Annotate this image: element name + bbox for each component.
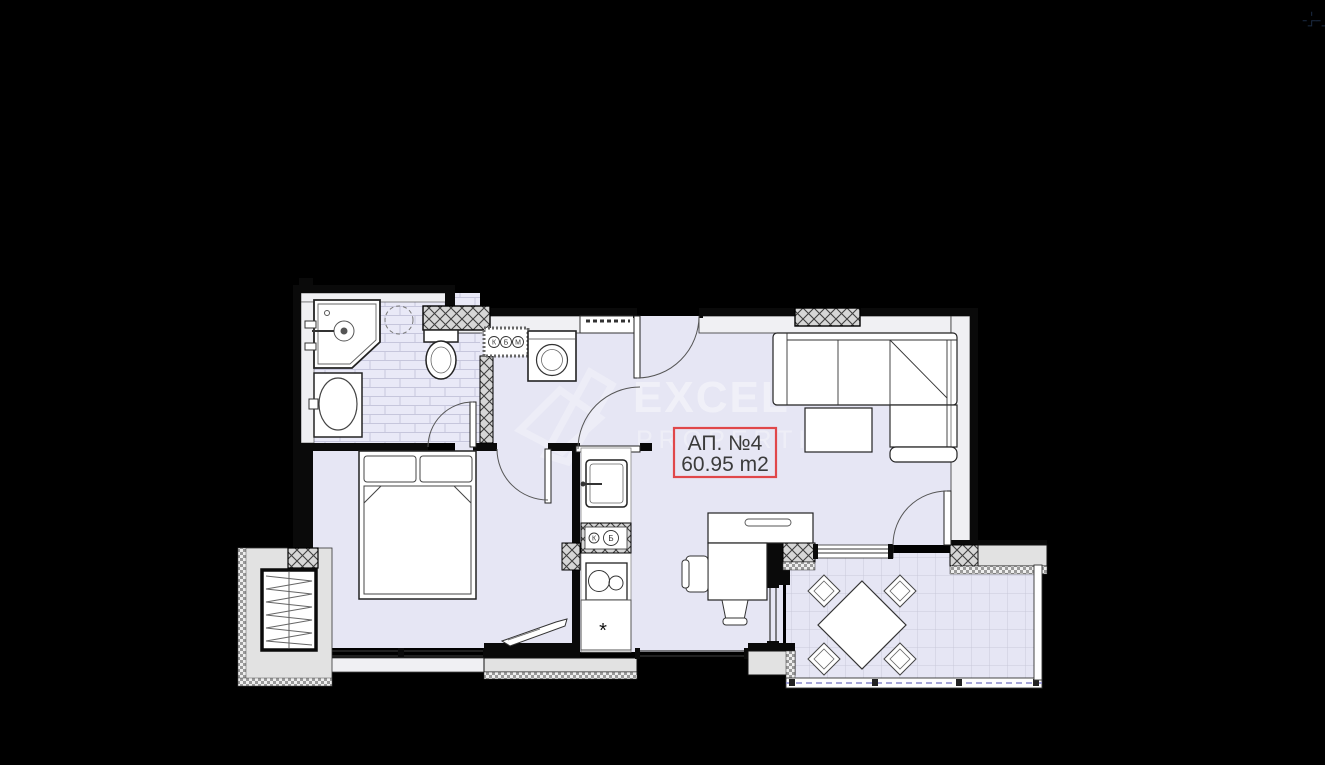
bathroom-sink	[309, 373, 362, 437]
desk	[708, 543, 767, 600]
boiler-meters: К Б	[581, 523, 631, 553]
living-terrace-window	[813, 544, 893, 559]
sideboard	[708, 513, 813, 543]
kitchen-cabinet: *	[581, 600, 631, 650]
apartment-area: 60.95 m2	[681, 453, 769, 476]
floor-plan: EXCEL PROPERTIES	[0, 0, 1325, 765]
kitchen-sink	[581, 460, 628, 507]
exterior-platform	[238, 548, 332, 686]
bedroom-window	[318, 648, 488, 659]
meter-label: Б	[608, 534, 613, 543]
double-bed	[359, 451, 476, 599]
grid-icon[interactable]: ✚✚	[1301, 8, 1325, 34]
electrical-panel	[580, 316, 637, 333]
washing-machine	[528, 331, 576, 381]
meter-label: М	[515, 340, 521, 347]
apartment-number: АП. №4	[688, 432, 763, 455]
desk-chair-bottom	[722, 600, 748, 625]
screenshot-canvas: EXCEL PROPERTIES	[0, 0, 1325, 765]
utility-meters: К Б М	[484, 328, 528, 356]
kitchen: К Б *	[581, 448, 632, 652]
apartment-label: АП. №4 60.95 m2	[674, 428, 776, 477]
desk-chair-left	[682, 556, 708, 592]
watermark-line1: EXCEL	[633, 373, 790, 422]
toilet	[424, 330, 458, 379]
meter-label: Б	[504, 340, 509, 347]
cabinet-mark: *	[599, 620, 607, 642]
coffee-table	[805, 408, 872, 452]
cooktop	[586, 563, 627, 600]
